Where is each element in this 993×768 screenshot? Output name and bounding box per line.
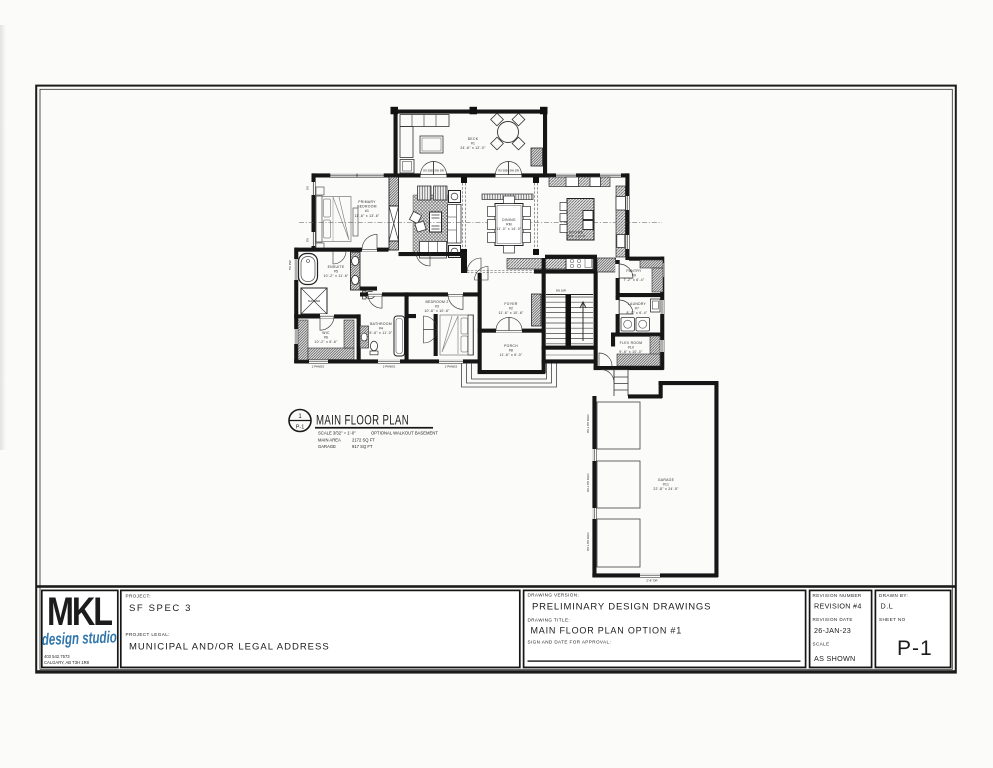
svg-text:MAIN FLOOR PLAN OPTION #1: MAIN FLOOR PLAN OPTION #1 <box>531 626 683 636</box>
svg-text:#5: #5 <box>334 270 338 274</box>
svg-text:CALGARY, AB T3H 1R8: CALGARY, AB T3H 1R8 <box>44 660 90 665</box>
svg-text:BATHROOM: BATHROOM <box>370 322 392 326</box>
svg-text:#2: #2 <box>509 307 513 311</box>
svg-text:SHOWER: SHOWER <box>308 299 321 303</box>
svg-text:#3: #3 <box>435 305 439 309</box>
svg-text:9'0 x 8'0 OHD: 9'0 x 8'0 OHD <box>586 532 590 551</box>
svg-text:917 SQ FT: 917 SQ FT <box>352 444 373 449</box>
svg-text:10'-6" x 10'-6": 10'-6" x 10'-6" <box>424 309 450 313</box>
svg-text:5'0: 5'0 <box>306 238 310 242</box>
svg-text:2 PANES: 2 PANES <box>312 365 324 369</box>
svg-text:PORCH: PORCH <box>504 344 518 348</box>
svg-text:SHEET NO: SHEET NO <box>879 617 906 622</box>
svg-text:2 PANES: 2 PANES <box>445 365 457 369</box>
svg-text:PRELIMINARY DESIGN DRAWINGS: PRELIMINARY DESIGN DRAWINGS <box>532 602 711 613</box>
svg-text:10'-2" x 6'-6": 10'-2" x 6'-6" <box>314 340 338 344</box>
svg-text:PROJECT:: PROJECT: <box>126 594 151 599</box>
svg-text:MAIN AREA: MAIN AREA <box>318 438 341 443</box>
svg-text:PANTRY: PANTRY <box>626 269 642 273</box>
svg-text:SF SPEC 3: SF SPEC 3 <box>129 603 192 614</box>
svg-text:RM: RM <box>506 223 512 227</box>
svg-text:9'0 3050 SW DR: 9'0 3050 SW DR <box>498 169 519 173</box>
svg-text:15'-6" x 10'-0": 15'-6" x 10'-0" <box>566 235 586 239</box>
svg-text:PROJECT LEGAL:: PROJECT LEGAL: <box>126 632 170 637</box>
svg-text:10'-2" x 11'-6": 10'-2" x 11'-6" <box>323 274 349 278</box>
svg-text:GARAGE: GARAGE <box>318 444 336 449</box>
svg-text:SCALE: SCALE <box>813 642 830 647</box>
svg-text:D.L: D.L <box>881 602 894 611</box>
svg-text:BEDROOM: BEDROOM <box>357 205 377 209</box>
svg-text:11'-6" x 13'-6": 11'-6" x 13'-6" <box>354 214 380 218</box>
svg-text:403 542.7573: 403 542.7573 <box>44 654 70 659</box>
svg-text:26-JAN-23: 26-JAN-23 <box>814 626 851 635</box>
svg-text:MUNICIPAL AND/OR LEGAL ADDRESS: MUNICIPAL AND/OR LEGAL ADDRESS <box>129 642 330 653</box>
svg-text:P-1: P-1 <box>897 637 933 660</box>
svg-text:ENSUITE: ENSUITE <box>328 265 345 269</box>
svg-text:#7: #7 <box>635 307 639 311</box>
svg-text:7'-2" x 6'-4": 7'-2" x 6'-4" <box>624 278 645 282</box>
svg-text:MKL: MKL <box>47 590 113 634</box>
svg-text:AS SHOWN: AS SHOWN <box>814 654 856 663</box>
svg-text:#8: #8 <box>509 349 513 353</box>
svg-text:11'-6" x 10'-6": 11'-6" x 10'-6" <box>498 311 524 315</box>
svg-text:9'0 x 8'0 OHD: 9'0 x 8'0 OHD <box>586 414 590 433</box>
svg-text:11'-6" x 6'-0": 11'-6" x 6'-0" <box>500 353 523 357</box>
svg-text:FOYER: FOYER <box>504 302 517 306</box>
svg-text:DRAWN BY:: DRAWN BY: <box>879 593 908 598</box>
svg-text:24'-6" x 12'-0": 24'-6" x 12'-0" <box>460 146 486 150</box>
svg-text:WIC: WIC <box>322 331 330 335</box>
svg-text:9'0 x 8'0 OHD: 9'0 x 8'0 OHD <box>586 473 590 492</box>
svg-text:BEDROOM 2: BEDROOM 2 <box>425 300 448 304</box>
svg-text:REVISION #4: REVISION #4 <box>814 602 862 611</box>
svg-text:#11: #11 <box>663 483 669 487</box>
svg-text:OPTIONAL WALKOUT BASEMENT: OPTIONAL WALKOUT BASEMENT <box>371 431 438 436</box>
svg-text:DINING: DINING <box>502 218 516 222</box>
svg-text:2'-8" DR: 2'-8" DR <box>646 579 658 583</box>
svg-text:9'-6" x 10'-0": 9'-6" x 10'-0" <box>619 350 643 354</box>
svg-text:#9: #9 <box>632 274 636 278</box>
svg-text:8'-0" x 6'-4": 8'-0" x 6'-4" <box>627 311 648 315</box>
svg-text:MAIN FLOOR PLAN: MAIN FLOOR PLAN <box>316 413 409 428</box>
svg-text:2 PANES: 2 PANES <box>383 365 395 369</box>
svg-text:5'-6" x 11'-0": 5'-6" x 11'-0" <box>370 331 393 335</box>
svg-text:FLEX ROOM: FLEX ROOM <box>620 341 643 345</box>
svg-text:REVISION DATE: REVISION DATE <box>813 617 853 622</box>
svg-text:P-1: P-1 <box>296 425 305 431</box>
svg-text:#6: #6 <box>324 336 328 340</box>
svg-text:#4: #4 <box>379 327 383 331</box>
svg-text:GARAGE: GARAGE <box>658 478 675 482</box>
svg-text:DRAWING VERSION:: DRAWING VERSION: <box>528 593 580 598</box>
svg-text:11'-0" x 14'-0": 11'-0" x 14'-0" <box>496 227 522 231</box>
svg-text:#1: #1 <box>365 209 369 213</box>
svg-text:design studio: design studio <box>42 628 118 649</box>
svg-text:5'0 PW: 5'0 PW <box>288 260 292 270</box>
svg-text:22'-8" x 24'-5": 22'-8" x 24'-5" <box>653 487 679 491</box>
svg-text:DECK: DECK <box>468 137 479 141</box>
svg-text:LAUNDRY: LAUNDRY <box>628 302 647 306</box>
svg-text:5'0: 5'0 <box>306 186 310 190</box>
svg-text:SIGN AND DATE FOR APPROVAL:: SIGN AND DATE FOR APPROVAL: <box>528 640 612 645</box>
svg-text:DN 16R: DN 16R <box>556 289 566 293</box>
svg-text:2172 SQ FT: 2172 SQ FT <box>352 438 375 443</box>
svg-text:REVISION NUMBER: REVISION NUMBER <box>813 593 862 598</box>
svg-text:9'0 3050 SW DR: 9'0 3050 SW DR <box>423 169 444 173</box>
svg-text:SCALE 3/32" = 1'-0": SCALE 3/32" = 1'-0" <box>318 431 356 436</box>
svg-text:#1: #1 <box>471 142 475 146</box>
svg-text:DRAWING TITLE:: DRAWING TITLE: <box>528 618 571 623</box>
svg-text:PRIMARY: PRIMARY <box>358 200 376 204</box>
svg-text:#10: #10 <box>628 346 635 350</box>
